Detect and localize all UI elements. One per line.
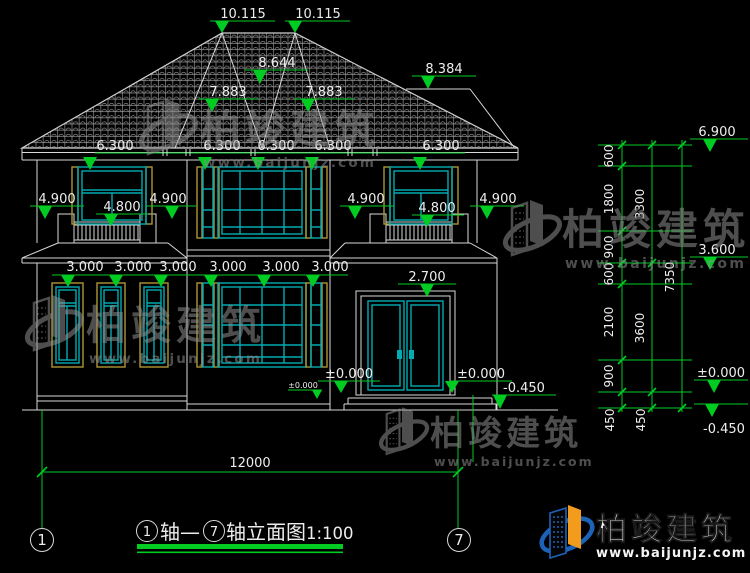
logo-company-name: 柏竣建筑 (596, 512, 736, 548)
watermark-company: 柏竣建筑 (562, 205, 750, 254)
title-axis-left-number: 1 (143, 525, 151, 540)
elevation-label-eave-5: 6.300 (422, 139, 459, 154)
elevation-label-hip-left: 7.883 (209, 85, 246, 100)
dim-seg-450b: 450 (634, 409, 648, 432)
dim-seg-600a: 600 (602, 145, 616, 168)
watermark-website: www.baijunjz.com (89, 351, 262, 367)
level-label-neg450: -0.450 (703, 422, 745, 437)
elevation-label-balcony-right-1: 4.900 (347, 192, 384, 207)
level-label-zero: ±0.000 (697, 366, 745, 381)
elevation-label-floor2-2: 3.000 (114, 260, 151, 275)
watermark-company: 柏竣建筑 (200, 107, 380, 153)
title-block: 1 轴— 7 轴立面图 1:100 (137, 520, 354, 553)
level-label-6900: 6.900 (698, 125, 735, 140)
elevation-label-door-head: 2.700 (408, 270, 445, 285)
elevation-label-floor2-5: 3.000 (262, 260, 299, 275)
watermark-website: www.baijunjz.com (565, 256, 746, 272)
title-underline-thick (137, 544, 343, 549)
elevation-label-hip-right: 7.883 (305, 85, 342, 100)
dim-seg-2100: 2100 (602, 307, 616, 338)
watermark-company: 柏竣建筑 (86, 303, 266, 349)
door-handle (397, 350, 402, 359)
elevation-label-zero-small: ±0.000 (288, 381, 318, 390)
elevation-label-zero-left: ±0.000 (325, 367, 373, 382)
elevation-label-eave-1: 6.300 (96, 139, 133, 154)
logo-building-right (568, 505, 581, 549)
elevation-label-balcony-right-2: 4.800 (418, 201, 455, 216)
title-suffix: 轴立面图 (226, 520, 306, 544)
elevation-label-balcony-left-1: 4.900 (38, 192, 75, 207)
elevation-label-balcony-left-2: 4.800 (103, 200, 140, 215)
logo-building-windows (553, 517, 563, 547)
elevation-label-floor2-6: 3.000 (311, 260, 348, 275)
watermark-website: www.baijunjz.com (203, 155, 376, 171)
axis-bubble-left-number: 1 (37, 531, 47, 549)
watermark-website: www.baijunjz.com (434, 454, 594, 469)
dim-overall-width: 12000 (229, 456, 270, 471)
cad-elevation-screenshot: 10.115 10.115 8.644 8.384 7.883 7.883 6.… (0, 0, 750, 573)
dim-seg-900b: 900 (602, 365, 616, 388)
title-scale: 1:100 (306, 524, 354, 543)
elevation-label-balcony-right-3: 4.900 (479, 192, 516, 207)
logo-building-left (550, 508, 566, 558)
dim-seg-450a: 450 (603, 409, 617, 432)
title-underline-thin (137, 552, 343, 554)
elevation-label-zero-right: ±0.000 (457, 367, 505, 382)
logo-website: www.baijunjz.com (596, 546, 746, 561)
title-connector: 轴— (160, 520, 200, 544)
elevation-label-floor2-4: 3.000 (209, 260, 246, 275)
elevation-label-ridge-right: 10.115 (295, 7, 341, 22)
axis-bubble-right-number: 7 (454, 531, 464, 549)
elevation-label-upper-right: 8.384 (425, 62, 462, 77)
elevation-label-floor2-3: 3.000 (159, 260, 196, 275)
door-handle (409, 350, 414, 359)
elevation-label-upper-mid: 8.644 (258, 56, 295, 71)
elevation-label-floor2-1: 3.000 (66, 260, 103, 275)
elevation-drawing: 10.115 10.115 8.644 8.384 7.883 7.883 6.… (0, 0, 750, 573)
title-axis-right-number: 7 (210, 525, 218, 540)
elevation-label-ground: -0.450 (503, 381, 545, 396)
dim-seg-3600: 3600 (633, 313, 647, 344)
watermark-company: 柏竣建筑 (430, 414, 582, 454)
elevation-label-balcony-left-3: 4.900 (149, 192, 186, 207)
elevation-label-ridge-left: 10.115 (220, 7, 266, 22)
